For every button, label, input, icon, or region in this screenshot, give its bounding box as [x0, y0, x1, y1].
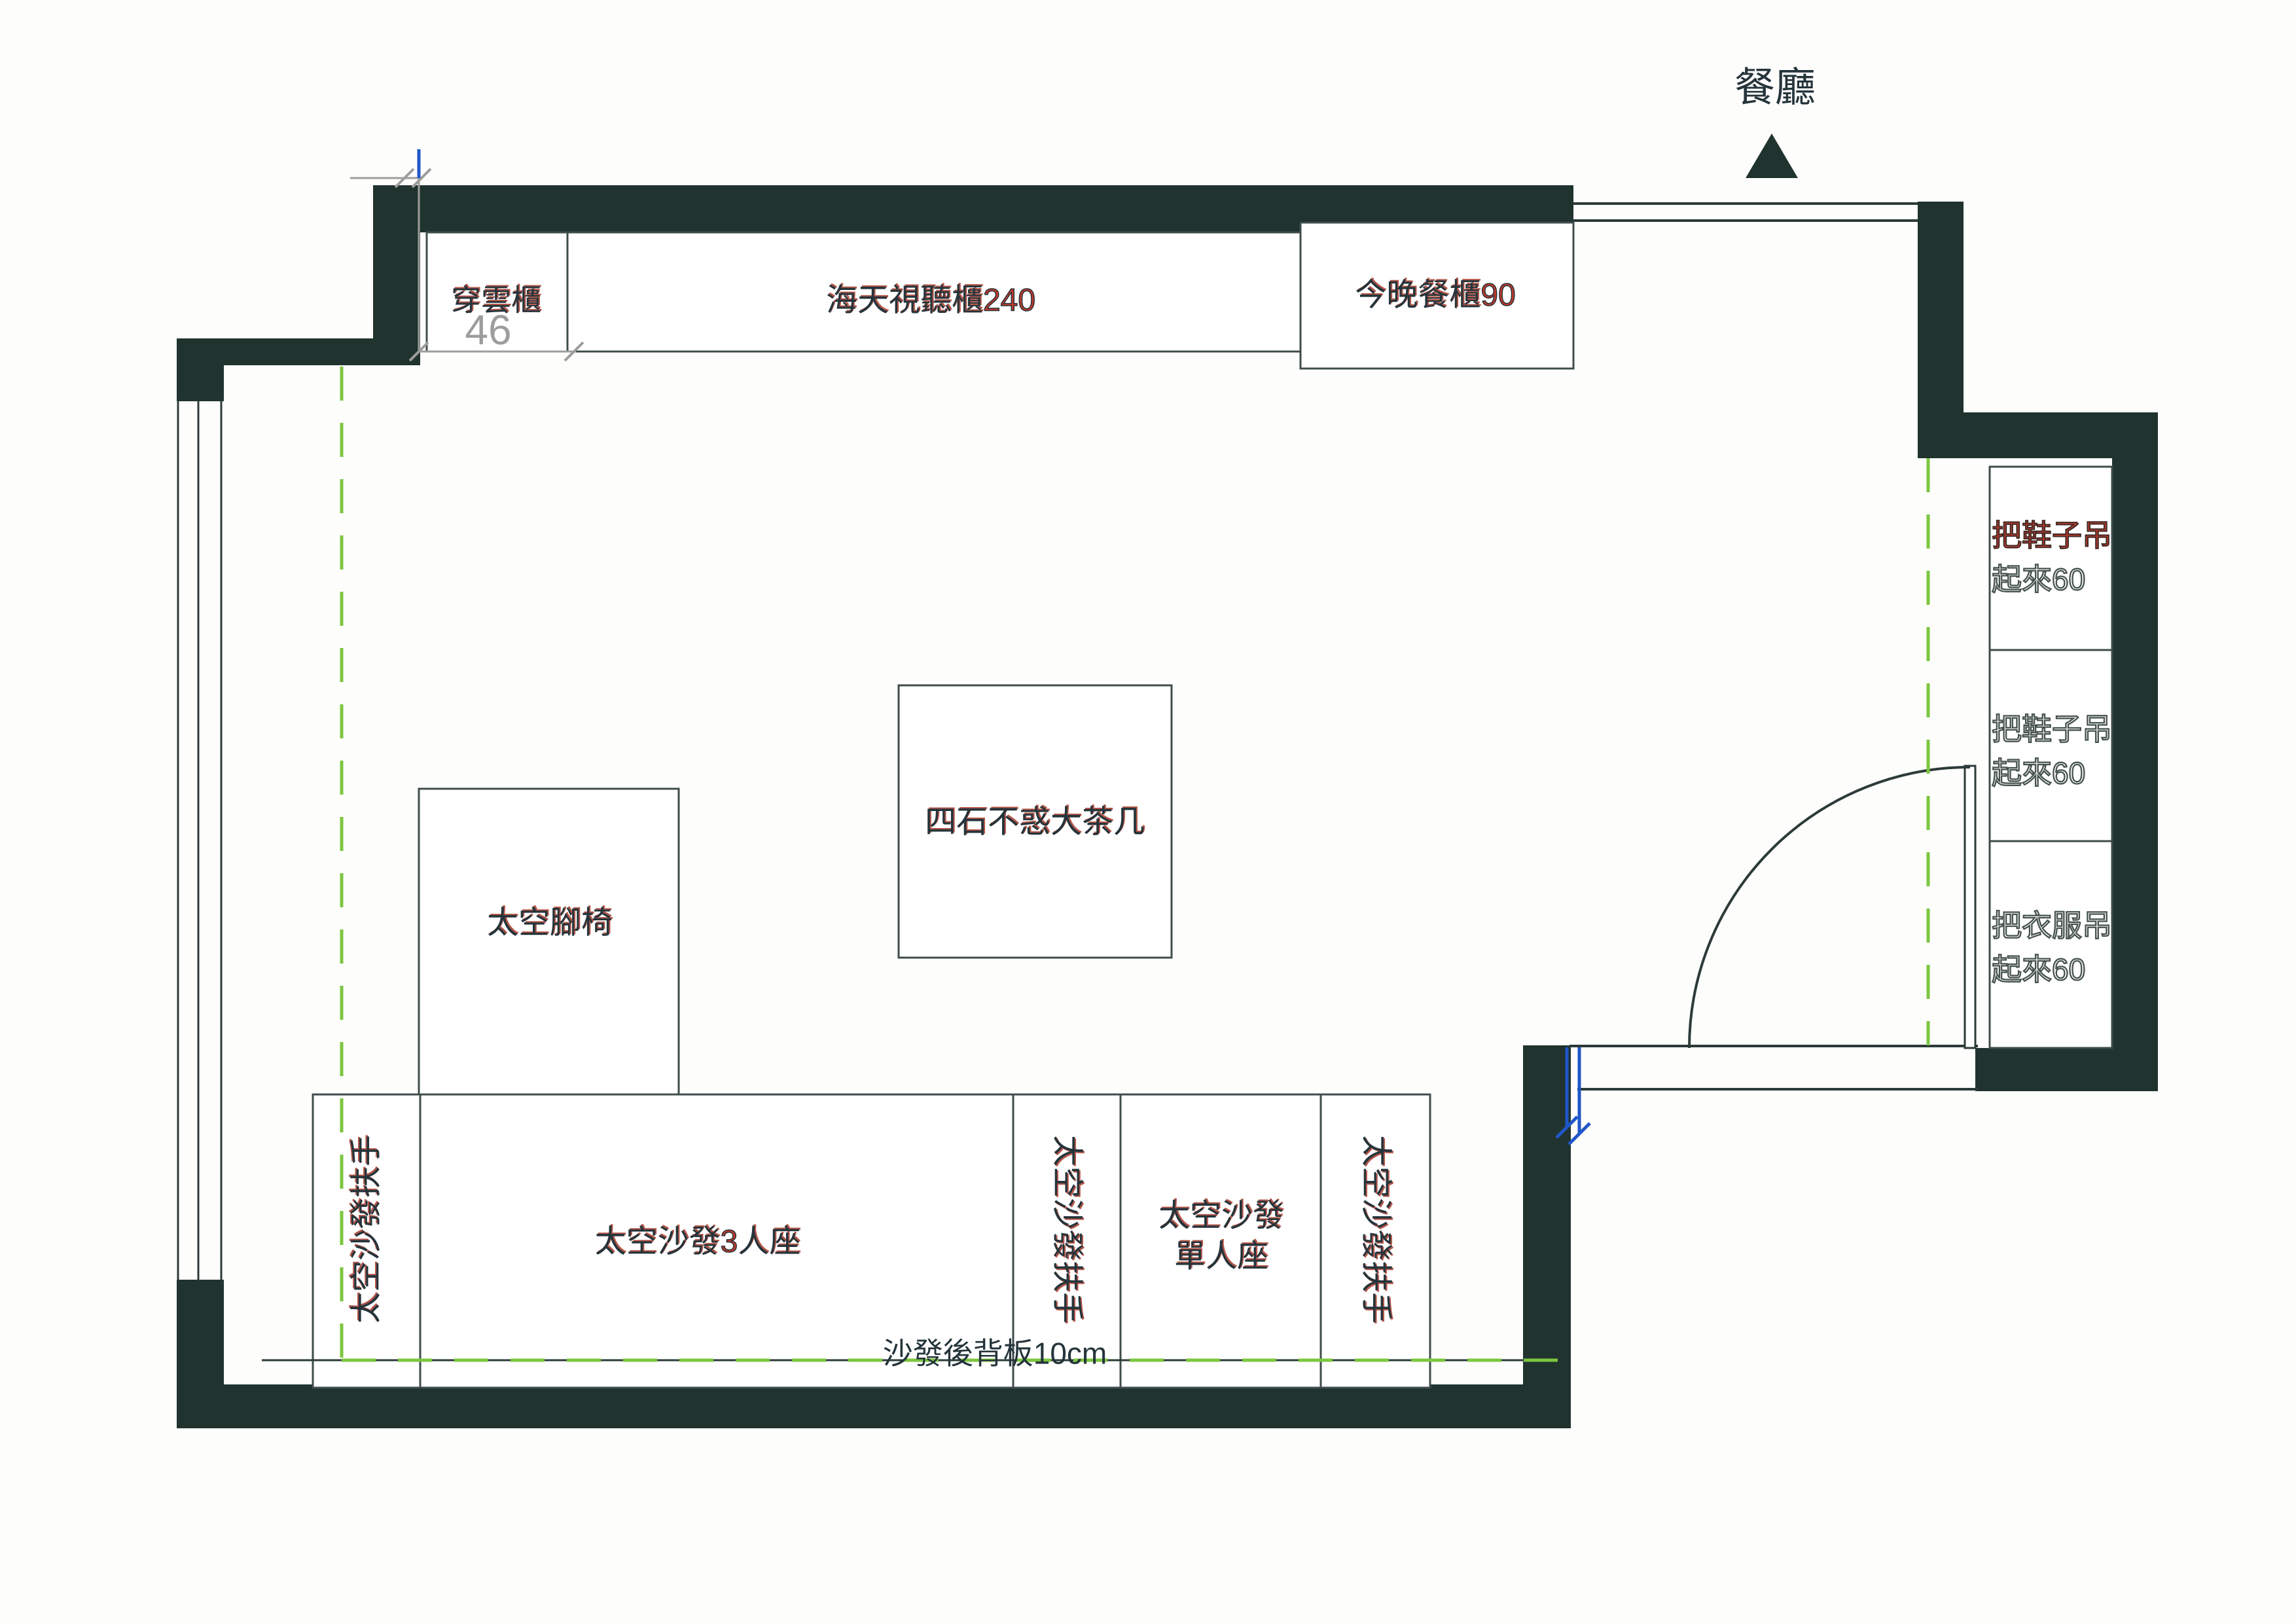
armrest-right-label-text: 太空沙發扶手 — [1359, 1135, 1393, 1324]
floor-plan: 餐廳穿雲櫃46海天視聽櫃240今晚餐櫃90四石不惑大茶几太空腳椅太空沙發3人座太… — [0, 0, 2296, 1624]
coffee-table-label: 四石不惑大茶几 — [925, 804, 1145, 840]
dining-room-label: 餐廳 — [1734, 64, 1816, 111]
wardrobe-label-text: 把衣服吊 — [1992, 909, 2112, 943]
footstool-label-text: 太空腳椅 — [487, 905, 613, 940]
shoe-cabinet-2-label: 把鞋子吊起來60 — [1992, 708, 2112, 795]
tv-cabinet-label-text: 海天視聽櫃 — [826, 283, 983, 317]
shoe-cabinet-2-label-text: 起來60 — [1992, 756, 2085, 790]
sofa-3seat-label-text: 太空沙發 — [595, 1224, 721, 1259]
dinner-cabinet-label-text: 今晚餐櫃 — [1355, 278, 1480, 312]
wardrobe-label: 把衣服吊起來60 — [1992, 904, 2112, 992]
sofa-single-label: 太空沙發單人座 — [1158, 1196, 1284, 1277]
dim-46-label-text: 46 — [465, 306, 511, 353]
tv-cabinet-label: 海天視聽櫃240 — [826, 282, 1035, 318]
tv-cabinet-label-text: 240 — [983, 283, 1035, 317]
wardrobe-label-text: 起來60 — [1992, 952, 2085, 986]
armrest-middle-label-text: 太空沙發扶手 — [1050, 1135, 1085, 1324]
footstool-label: 太空腳椅 — [487, 905, 613, 941]
labels-layer: 餐廳穿雲櫃46海天視聽櫃240今晚餐櫃90四石不惑大茶几太空腳椅太空沙發3人座太… — [0, 0, 2296, 1624]
sofa-3seat-label: 太空沙發3人座 — [595, 1223, 801, 1259]
dinner-cabinet-label-text: 90 — [1480, 278, 1515, 312]
sofa-single-label-text: 單人座 — [1174, 1239, 1268, 1274]
shoe-cabinet-1-label: 把鞋子吊起來60 — [1992, 514, 2112, 602]
armrest-left-label-text: 太空沙發扶手 — [349, 1135, 384, 1324]
sofa-back-panel-note-text: 沙發後背板10cm — [883, 1337, 1107, 1371]
sofa-3seat-label-text: 3 — [721, 1224, 738, 1259]
armrest-left-label: 太空沙發扶手 — [348, 1135, 384, 1324]
sofa-3seat-label-text: 人座 — [738, 1224, 800, 1259]
shoe-cabinet-1-label-text: 起來60 — [1992, 562, 2085, 596]
armrest-middle-label: 太空沙發扶手 — [1049, 1135, 1085, 1324]
sofa-single-label-text: 太空沙發 — [1158, 1199, 1284, 1233]
shoe-cabinet-1-label-text: 把鞋子吊 — [1992, 518, 2112, 552]
dining-room-label-text: 餐廳 — [1734, 65, 1816, 110]
coffee-table-label-text: 四石不惑大茶几 — [925, 804, 1145, 839]
dinner-cabinet-label: 今晚餐櫃90 — [1355, 277, 1515, 313]
armrest-right-label: 太空沙發扶手 — [1357, 1135, 1393, 1324]
sofa-back-panel-note: 沙發後背板10cm — [883, 1337, 1107, 1371]
dim-46-label: 46 — [465, 306, 511, 355]
shoe-cabinet-2-label-text: 把鞋子吊 — [1992, 712, 2112, 746]
